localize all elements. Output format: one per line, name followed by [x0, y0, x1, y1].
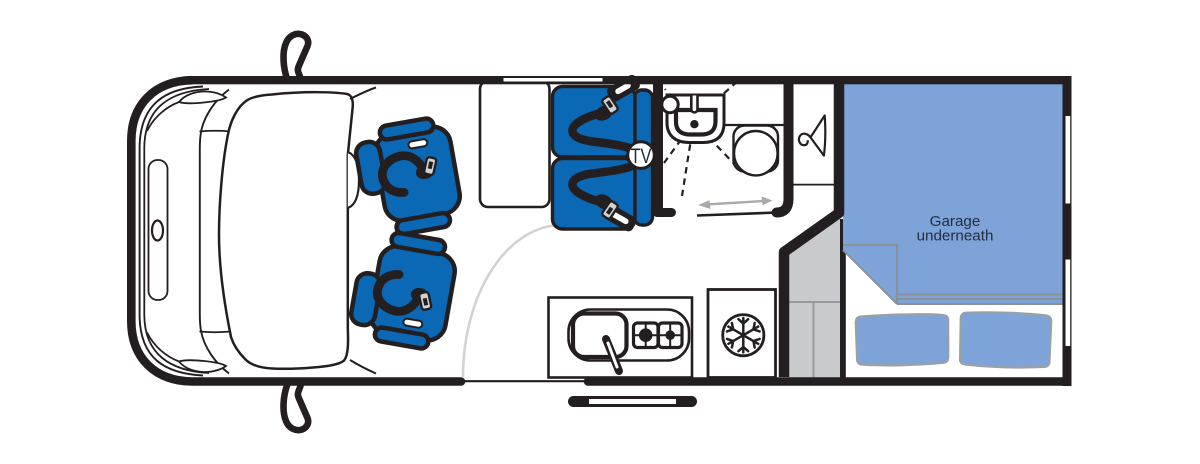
svg-text:underneath: underneath — [917, 227, 994, 244]
svg-text:TV: TV — [631, 144, 652, 168]
